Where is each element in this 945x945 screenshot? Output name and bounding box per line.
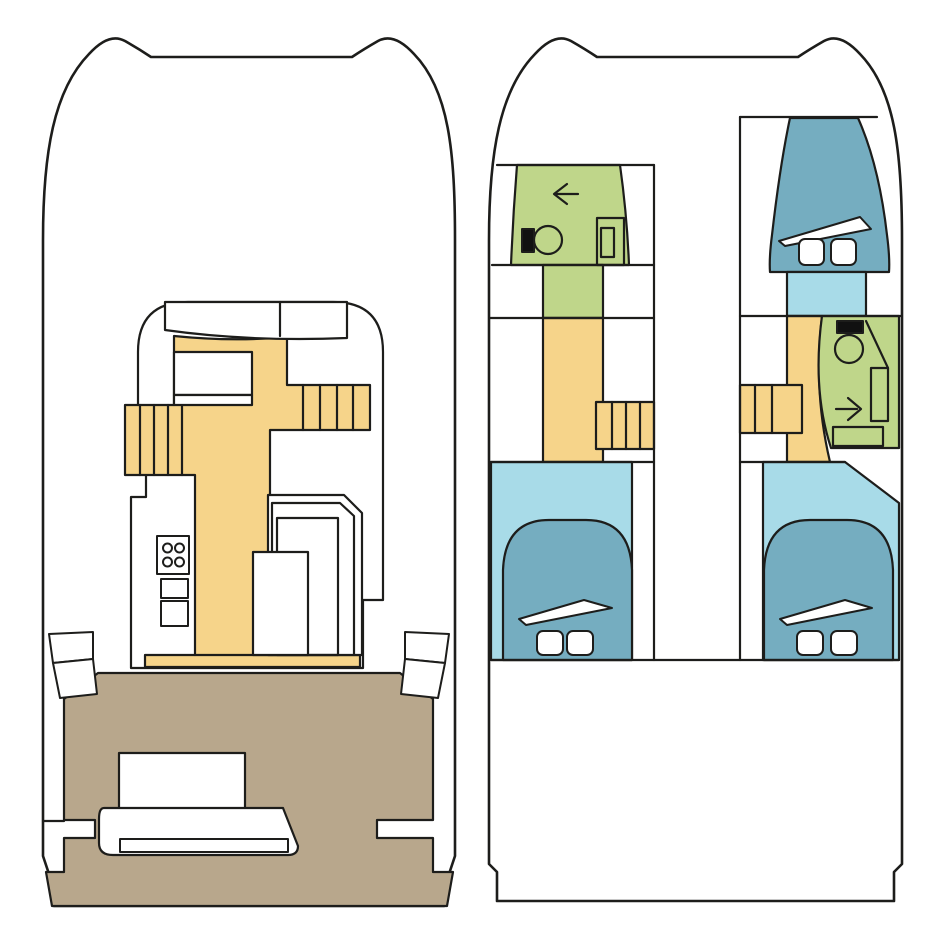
starboard-forward-cabin-floor [787,272,866,316]
lower-deck-plan [489,38,902,901]
deck-plans-figure [0,0,945,945]
saloon-table [174,352,252,395]
pillow [799,239,824,265]
pillow [797,631,823,655]
cockpit-bench [99,808,298,855]
galley-sink [161,579,188,598]
starboard-head [819,316,899,448]
pillow [567,631,593,655]
pillow [831,239,856,265]
saloon-bench-strip [174,395,252,405]
toilet-tank [837,321,863,333]
side-step [49,632,93,663]
toilet-tank [522,229,534,252]
dinette [253,495,362,655]
stove [157,536,189,574]
catamaran-deck-plans [0,0,945,945]
side-step [401,659,445,698]
pillow [831,631,857,655]
port-corridor-yellow [543,318,603,462]
galley [157,536,189,626]
galley-sink [161,601,188,626]
cockpit-deck [46,673,453,906]
front-seat-panel [165,302,347,339]
side-step [405,632,449,663]
cockpit-table [119,753,245,810]
dinette-table [253,552,308,655]
side-step [53,659,97,698]
port-corridor-green [543,265,603,318]
pillow [537,631,563,655]
starboard-aft-bed [764,520,893,660]
main-deck-plan [43,38,455,906]
